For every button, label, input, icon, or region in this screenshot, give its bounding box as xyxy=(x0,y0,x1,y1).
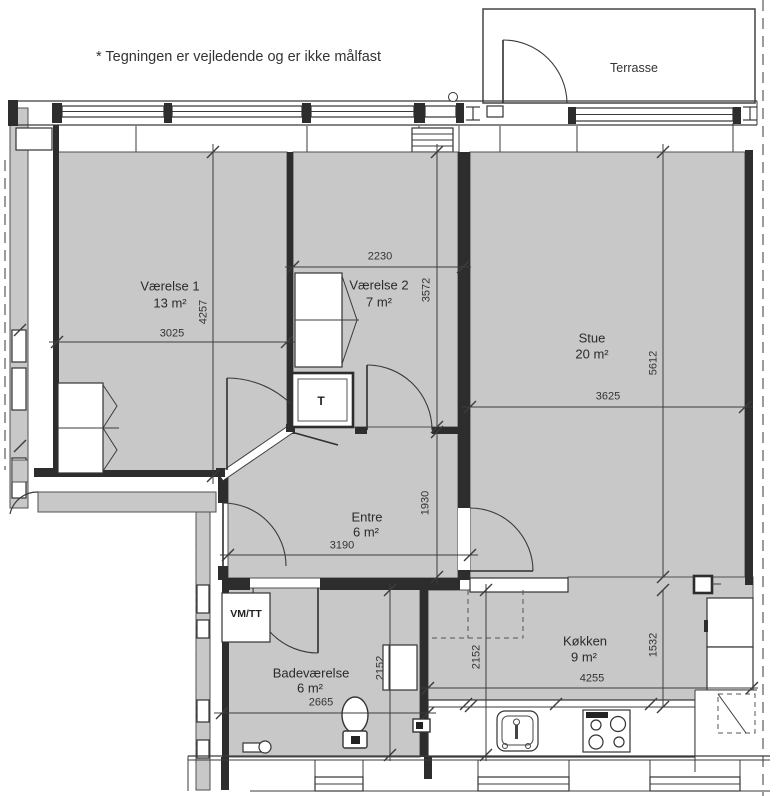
stove-icon xyxy=(583,710,630,752)
north-window-band xyxy=(8,93,757,153)
terrace-outline xyxy=(483,9,755,103)
disclaimer-note: * Tegningen er vejledende og er ikke mål… xyxy=(96,50,381,65)
terrace-label: Terrasse xyxy=(610,62,658,75)
dim-entre-height: 1930 xyxy=(421,491,432,515)
kitchen-sink-icon xyxy=(497,711,538,751)
floor-plan: * Tegningen er vejledende og er ikke mål… xyxy=(0,0,778,796)
washer-dryer-label: VM/TT xyxy=(230,609,262,620)
dim-koekken-left: 2152 xyxy=(472,645,483,669)
room-area-badevaerelse: 6 m² xyxy=(297,682,323,695)
tall-cabinets xyxy=(704,598,753,690)
wall-fixture xyxy=(413,719,430,732)
floor-plan-drawing xyxy=(0,0,778,796)
dim-vaerelse1-height: 4257 xyxy=(199,300,210,324)
column xyxy=(694,576,712,593)
dim-stue-height: 5612 xyxy=(649,351,660,375)
drain-symbol-icon xyxy=(449,93,458,102)
dim-entre-width: 3190 xyxy=(330,541,354,552)
dim-vaerelse1-width: 3025 xyxy=(160,329,184,340)
dim-koekken-width: 4255 xyxy=(580,674,604,685)
room-area-vaerelse1: 13 m² xyxy=(153,297,186,310)
room-name-vaerelse1: Værelse 1 xyxy=(140,280,199,293)
room-area-koekken: 9 m² xyxy=(571,651,597,664)
steel-column-icon xyxy=(466,107,480,120)
room-stue-floor xyxy=(470,152,745,578)
steel-column-icon xyxy=(743,107,757,120)
room-area-entre: 6 m² xyxy=(353,526,379,539)
dim-badevaerelse-height: 2152 xyxy=(376,656,387,680)
dim-stue-width: 3625 xyxy=(596,392,620,403)
room-name-badevaerelse: Badeværelse xyxy=(273,667,350,680)
dim-vaerelse2-width: 2230 xyxy=(368,252,392,263)
dim-vaerelse2-height: 3572 xyxy=(422,278,433,302)
room-area-vaerelse2: 7 m² xyxy=(366,296,392,309)
room-name-stue: Stue xyxy=(579,332,606,345)
tech-closet-label: T xyxy=(317,395,324,407)
toilet-icon xyxy=(342,697,368,748)
dim-koekken-height: 1532 xyxy=(649,633,660,657)
room-area-stue: 20 m² xyxy=(575,348,608,361)
room-name-entre: Entre xyxy=(351,511,382,524)
room-name-vaerelse2: Værelse 2 xyxy=(349,279,408,292)
dim-badevaerelse-width: 2665 xyxy=(309,698,333,709)
washbasin-icon xyxy=(243,741,271,753)
room-name-koekken: Køkken xyxy=(563,635,607,648)
south-window-band xyxy=(188,756,770,791)
bath-sink-cabinet xyxy=(383,645,417,690)
